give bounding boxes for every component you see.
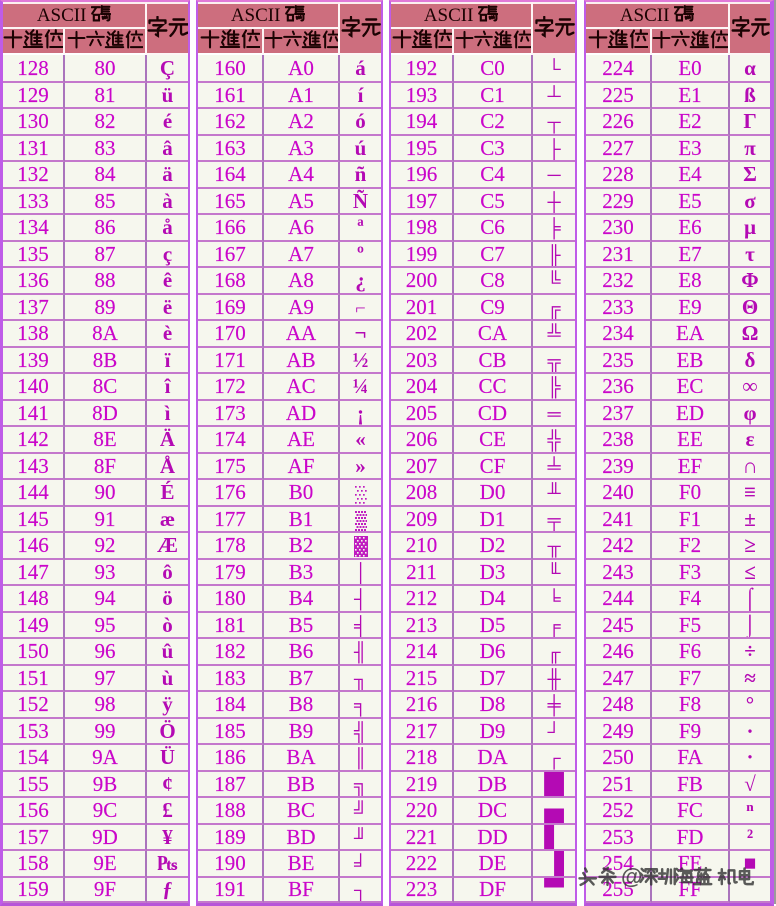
svg-text:@: @ [621, 864, 642, 889]
